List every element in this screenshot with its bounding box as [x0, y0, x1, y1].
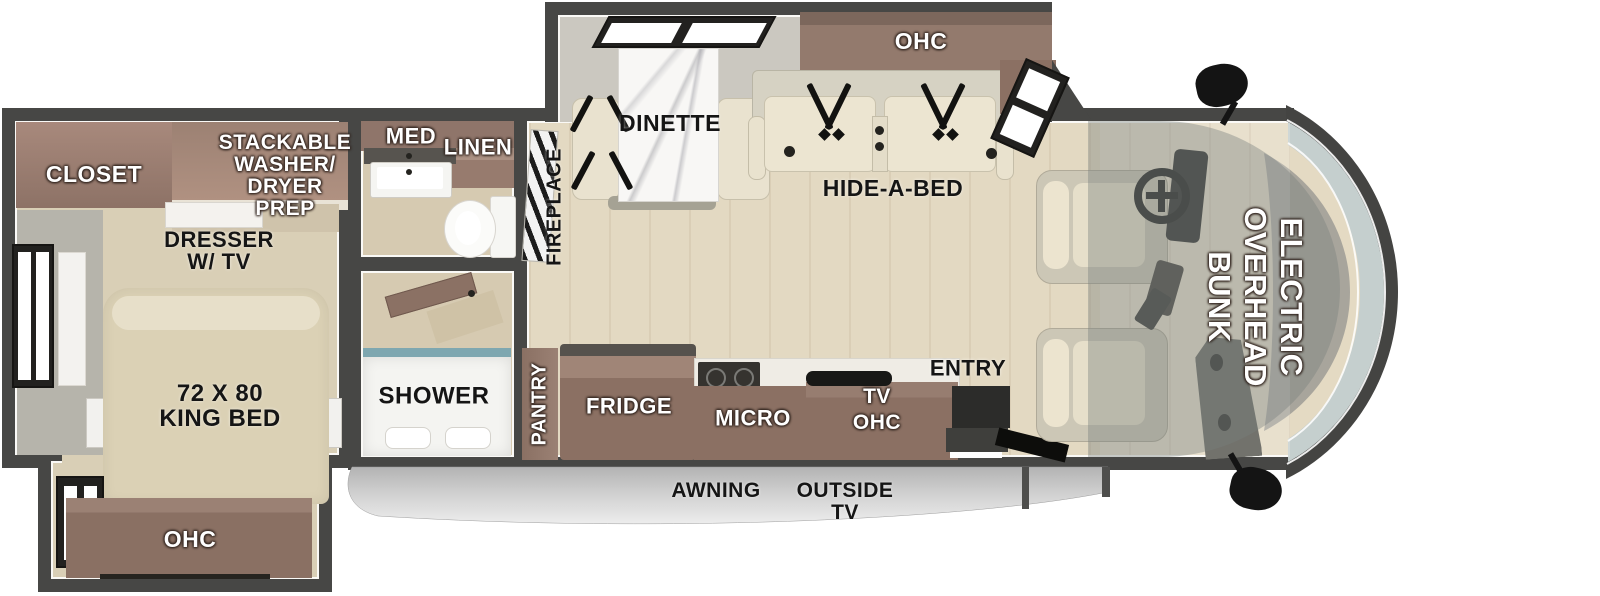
dinette-label: DINETTE	[619, 111, 721, 135]
sofa-cupholder	[986, 148, 997, 159]
fireplace-label: FIREPLACE	[545, 148, 566, 266]
entry-label: ENTRY	[930, 356, 1006, 379]
king-bed-label: 72 X 80 KING BED	[159, 381, 280, 431]
galley-ohc-label: OHC	[895, 29, 948, 53]
bedroom-ohc-label: OHC	[164, 527, 217, 551]
toilet-bowl	[444, 200, 496, 258]
bed-pillows	[112, 296, 320, 330]
electric-overhead-bunk-label: ELECTRIC OVERHEAD BUNK	[1201, 207, 1309, 387]
micro-label: MICRO	[715, 406, 791, 429]
bath-sink	[370, 162, 452, 198]
dinette-skylight-window	[591, 16, 776, 48]
rv-floorplan: CLOSET STACKABLE WASHER/ DRYER PREP DRES…	[0, 0, 1600, 596]
pantry-label: PANTRY	[530, 363, 551, 446]
fridge-label: FRIDGE	[586, 394, 672, 417]
dresser-label: DRESSER W/ TV	[164, 229, 274, 273]
bedroom-ohc-front-edge	[100, 574, 270, 579]
shower-label: SHOWER	[379, 383, 490, 408]
sofa-cupholder	[784, 146, 795, 157]
washer-dryer-label: STACKABLE WASHER/ DRYER PREP	[219, 132, 351, 220]
faucet-handle	[406, 169, 412, 175]
bedroom-left-window	[12, 244, 54, 388]
wardrobe-marble-panel	[58, 252, 86, 386]
med-label: MED	[386, 124, 436, 147]
door-handle	[468, 290, 475, 297]
tv-ohc-label: TV OHC	[853, 384, 901, 436]
hide-a-bed-label: HIDE-A-BED	[823, 176, 963, 200]
linen-label: LINEN	[444, 135, 513, 158]
awning-label: AWNING	[671, 480, 760, 502]
console-cupholder	[875, 142, 884, 151]
console-cupholder	[875, 126, 884, 135]
closet-label: CLOSET	[46, 162, 142, 186]
entry-step	[952, 386, 1010, 428]
outside-tv-label: OUTSIDE TV	[797, 480, 894, 524]
faucet-handle	[406, 153, 412, 159]
